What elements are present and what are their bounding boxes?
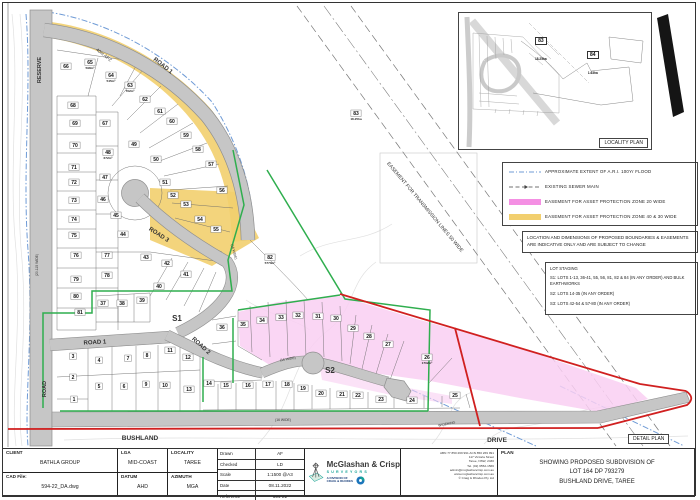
lot-number: 30	[333, 316, 339, 322]
lot-number: 38	[119, 301, 125, 307]
titleblock-row: Date08.11.2022	[218, 481, 304, 492]
lot-number: 27	[385, 342, 391, 348]
lot-number: 14	[206, 381, 212, 387]
locality-mini-map	[459, 13, 651, 149]
lot-number: 29	[350, 326, 356, 332]
locality-lot-84: 84 1.63ha	[587, 43, 599, 79]
lot-number: 51	[162, 180, 168, 186]
legend-swatch-yellow	[505, 213, 545, 221]
client-label: CLIENT	[6, 450, 23, 455]
lot-number: 68	[70, 103, 76, 109]
lot-area: 545m²	[107, 79, 116, 83]
lot-number: 31	[315, 314, 321, 320]
row-label: Checked	[218, 460, 256, 470]
legend-item: EXISTING SEWER MAIN	[505, 179, 695, 194]
legend-text: EASEMENT FOR ASSET PROTECTION ZONE 40 & …	[545, 214, 677, 219]
row-label: Reference	[218, 491, 256, 500]
lot-number: 40	[156, 284, 162, 290]
lot-number: 43	[143, 255, 149, 261]
lot-area: 762m²	[126, 89, 135, 93]
lot-number: 28	[366, 334, 372, 340]
surveyor-logo: McGlashan & Crisp SURVEYORS A DIVISION O…	[305, 449, 401, 496]
lot-number: 62	[142, 97, 148, 103]
row-value: 08.11.2022	[256, 483, 304, 488]
lot-number: 60	[169, 119, 175, 125]
lot-area: 1.63ha	[588, 71, 598, 75]
locality-lot-83: 83 18.25ha	[535, 29, 547, 65]
lot-area: 1702m²	[422, 361, 433, 365]
plan-label: S1	[172, 314, 182, 323]
lot-number: 21	[339, 392, 345, 398]
plan-label: RESERVE	[37, 57, 43, 84]
lot-number: 18	[284, 382, 290, 388]
client-cell: CLIENT BATHLA GROUP	[3, 449, 118, 473]
lot-number: 2	[72, 375, 75, 381]
boundaries-note: LOCATION AND DIMENSIONS OF PROPOSED BOUN…	[522, 231, 698, 253]
lot-number: 32	[295, 313, 301, 319]
row-value: AF	[256, 451, 304, 456]
lot-area: 5770m²	[265, 261, 276, 265]
plan-label: DRIVE	[487, 437, 508, 444]
legend-item: APPROXIMATE EXTENT OF A.R.I. 100Yr FLOOD	[505, 164, 695, 179]
lot-number: 67	[102, 121, 108, 127]
lot-area: 18.25ha	[350, 117, 362, 121]
firm-subtitle: SURVEYORS	[327, 470, 400, 474]
azimuth-value: MGA	[168, 484, 217, 490]
lot-number: 50	[153, 157, 159, 163]
lot-number: 58	[195, 147, 201, 153]
lot-number: 44	[120, 232, 126, 238]
row-label: Drawn	[218, 449, 256, 459]
lga-value: MID-COAST	[118, 460, 167, 466]
locality-plan-label: LOCALITY PLAN	[599, 138, 648, 148]
lot-number: 47	[102, 175, 108, 181]
plan-label: BUSHLAND	[122, 435, 159, 442]
craig-rhodes-icon	[356, 476, 365, 485]
lot-number: 16	[245, 383, 251, 389]
cad-file-value: 594-22_DA.dwg	[3, 484, 117, 490]
plan-line: LOT 164 DP 793279	[498, 468, 696, 477]
lot-number: 22	[355, 393, 361, 399]
staging-item: S2: LOTS 14-35 (IN ANY ORDER)	[550, 291, 693, 297]
lot-number: 84	[587, 51, 599, 59]
legend-swatch-pink	[505, 198, 545, 206]
lot-number: 55	[213, 227, 219, 233]
staging-item: S1: LOTS 1-13, 36-41, 55, 56, 81, 82 & 8…	[550, 275, 693, 287]
lot-number: 5	[98, 384, 101, 390]
lot-number: 25	[452, 393, 458, 399]
locality-label: LOCALITY	[171, 450, 194, 455]
plan-line: SHOWING PROPOSED SUBDIVISION OF	[498, 459, 696, 468]
lot-number: 73	[71, 198, 77, 204]
lot-number: 1	[73, 397, 76, 403]
legend-item: EASEMENT FOR ASSET PROTECTION ZONE 40 & …	[505, 209, 695, 224]
lot-number: 42	[164, 261, 170, 267]
datum-cell: DATUM AHD	[118, 473, 168, 496]
plan-description: PLAN SHOWING PROPOSED SUBDIVISION OFLOT …	[498, 449, 696, 496]
lot-number: 11	[167, 348, 173, 354]
lot-number: 23	[378, 397, 384, 403]
legend-item: EASEMENT FOR ASSET PROTECTION ZONE 20 WI…	[505, 194, 695, 209]
lot-area: 598m²	[86, 66, 95, 70]
lot-number: 45	[113, 213, 119, 219]
lot-number: 4	[98, 358, 101, 364]
row-label: Scale	[218, 470, 256, 480]
lot-number: 75	[71, 233, 77, 239]
lot-number: 70	[72, 143, 78, 149]
highway-bar	[657, 14, 684, 117]
staging-item: S3: LOTS 42-54 & 57-80 (IN ANY ORDER)	[550, 301, 693, 307]
revision-table: DrawnAFCheckedLDScale1:1500 @A3Date08.11…	[218, 449, 305, 496]
lot-number: 8	[146, 353, 149, 359]
lot-number: 71	[71, 165, 77, 171]
lot-number: 36	[219, 325, 225, 331]
row-value: 594-22	[256, 494, 304, 499]
titleblock-row: CheckedLD	[218, 460, 304, 471]
lot-number: 76	[73, 253, 79, 259]
plan-label: PLAN	[501, 450, 514, 455]
lot-number: 34	[259, 318, 265, 324]
lot-number: 49	[131, 142, 137, 148]
row-value: 1:1500 @A3	[256, 472, 304, 477]
lot-number: 46	[100, 197, 106, 203]
lot-area: 672m²	[104, 156, 113, 160]
lot-number: 12	[185, 355, 191, 361]
lot-number: 3	[72, 354, 75, 360]
lot-number: 59	[183, 133, 189, 139]
row-label: Date	[218, 481, 256, 491]
legend-swatch-sewer	[505, 183, 545, 191]
locality-cell: LOCALITY TAREE	[168, 449, 218, 473]
titleblock-row: Reference594-22	[218, 491, 304, 500]
theodolite-map-icon	[308, 458, 324, 488]
legend-text: EXISTING SEWER MAIN	[545, 184, 599, 189]
plan-label: (20.115 WIDE)	[35, 254, 39, 276]
lot-number: 79	[73, 277, 79, 283]
plan-label: (16 WIDE)	[275, 418, 291, 422]
lga-cell: LGA MID-COAST	[118, 449, 168, 473]
contact-line: © Craig & Rhodes Pty Ltd	[401, 476, 494, 480]
firm-name: McGlashan & Crisp	[327, 460, 400, 469]
lot-number: 24	[409, 398, 415, 404]
lot-number: 61	[157, 109, 163, 115]
lot-number: 9	[145, 382, 148, 388]
legend: APPROXIMATE EXTENT OF A.R.I. 100Yr FLOOD…	[502, 162, 698, 226]
title-block: CLIENT BATHLA GROUP CAD File: 594-22_DA.…	[2, 448, 695, 497]
lot-number: 37	[100, 301, 106, 307]
legend-swatch-flood	[505, 168, 545, 176]
lot-number: 41	[183, 272, 189, 278]
lot-number: 74	[71, 217, 77, 223]
lot-number: 35	[240, 322, 246, 328]
cad-file-cell: CAD File: 594-22_DA.dwg	[3, 473, 118, 496]
lot-number: 81	[77, 310, 83, 316]
titleblock-row: Scale1:1500 @A3	[218, 470, 304, 481]
plan-label: ROAD	[42, 381, 48, 397]
contact-details: ABN 77 850 269 991 ACN 850 269 991117 Vi…	[401, 449, 498, 496]
lot-number: 33	[278, 315, 284, 321]
lot-number: 39	[139, 298, 145, 304]
plan-label: ROAD 1	[83, 339, 107, 346]
locality-plan-inset: 83 18.25ha 84 1.63ha LOCALITY PLAN	[458, 12, 652, 150]
lot-number: 78	[104, 273, 110, 279]
lot-number: 20	[318, 391, 324, 397]
drawing-sheet: 1234567891011121314151617181920212223242…	[0, 0, 700, 500]
lot-number: 56	[219, 188, 225, 194]
lot-number: 19	[300, 386, 306, 392]
lot-number: 72	[71, 180, 77, 186]
plan-line: BUSHLAND DRIVE, TAREE	[498, 478, 696, 487]
azimuth-label: AZIMUTH	[171, 474, 192, 479]
lot-area: 18.25ha	[535, 57, 547, 61]
legend-text: EASEMENT FOR ASSET PROTECTION ZONE 20 WI…	[545, 199, 665, 204]
datum-label: DATUM	[121, 474, 137, 479]
plan-label: EASEMENT FOR TRANSMISSION LINES 50 WIDE	[385, 161, 465, 254]
azimuth-cell: AZIMUTH MGA	[168, 473, 218, 496]
lot-number: 17	[265, 382, 271, 388]
lot-number: 80	[73, 294, 79, 300]
lot-staging-title: LOT STAGING	[550, 266, 693, 271]
lot-number: 53	[183, 202, 189, 208]
detail-plan-label: DETAIL PLAN	[628, 434, 669, 444]
lot-number: 6	[123, 384, 126, 390]
client-value: BATHLA GROUP	[3, 460, 117, 466]
legend-text: APPROXIMATE EXTENT OF A.R.I. 100Yr FLOOD	[545, 169, 651, 174]
lot-number: 83	[535, 37, 547, 45]
titleblock-row: DrawnAF	[218, 449, 304, 460]
lot-number: 54	[197, 217, 203, 223]
lot-number: 66	[63, 64, 69, 70]
cad-file-label: CAD File:	[6, 474, 27, 479]
locality-value: TAREE	[168, 460, 217, 466]
lot-number: 69	[72, 121, 78, 127]
lot-number: 7	[127, 356, 130, 362]
lot-number: 77	[104, 253, 110, 259]
plan-label: S2	[325, 366, 335, 375]
lot-number: 52	[170, 193, 176, 199]
lga-label: LGA	[121, 450, 131, 455]
lot-staging-box: LOT STAGING S1: LOTS 1-13, 36-41, 55, 56…	[545, 262, 698, 315]
lot-number: 57	[208, 162, 214, 168]
datum-value: AHD	[118, 484, 167, 490]
row-value: LD	[256, 462, 304, 467]
lot-number: 10	[162, 383, 168, 389]
lot-number: 15	[223, 383, 229, 389]
lot-number: 13	[186, 387, 192, 393]
division-line2: CRAIG & RHODES	[327, 479, 353, 483]
